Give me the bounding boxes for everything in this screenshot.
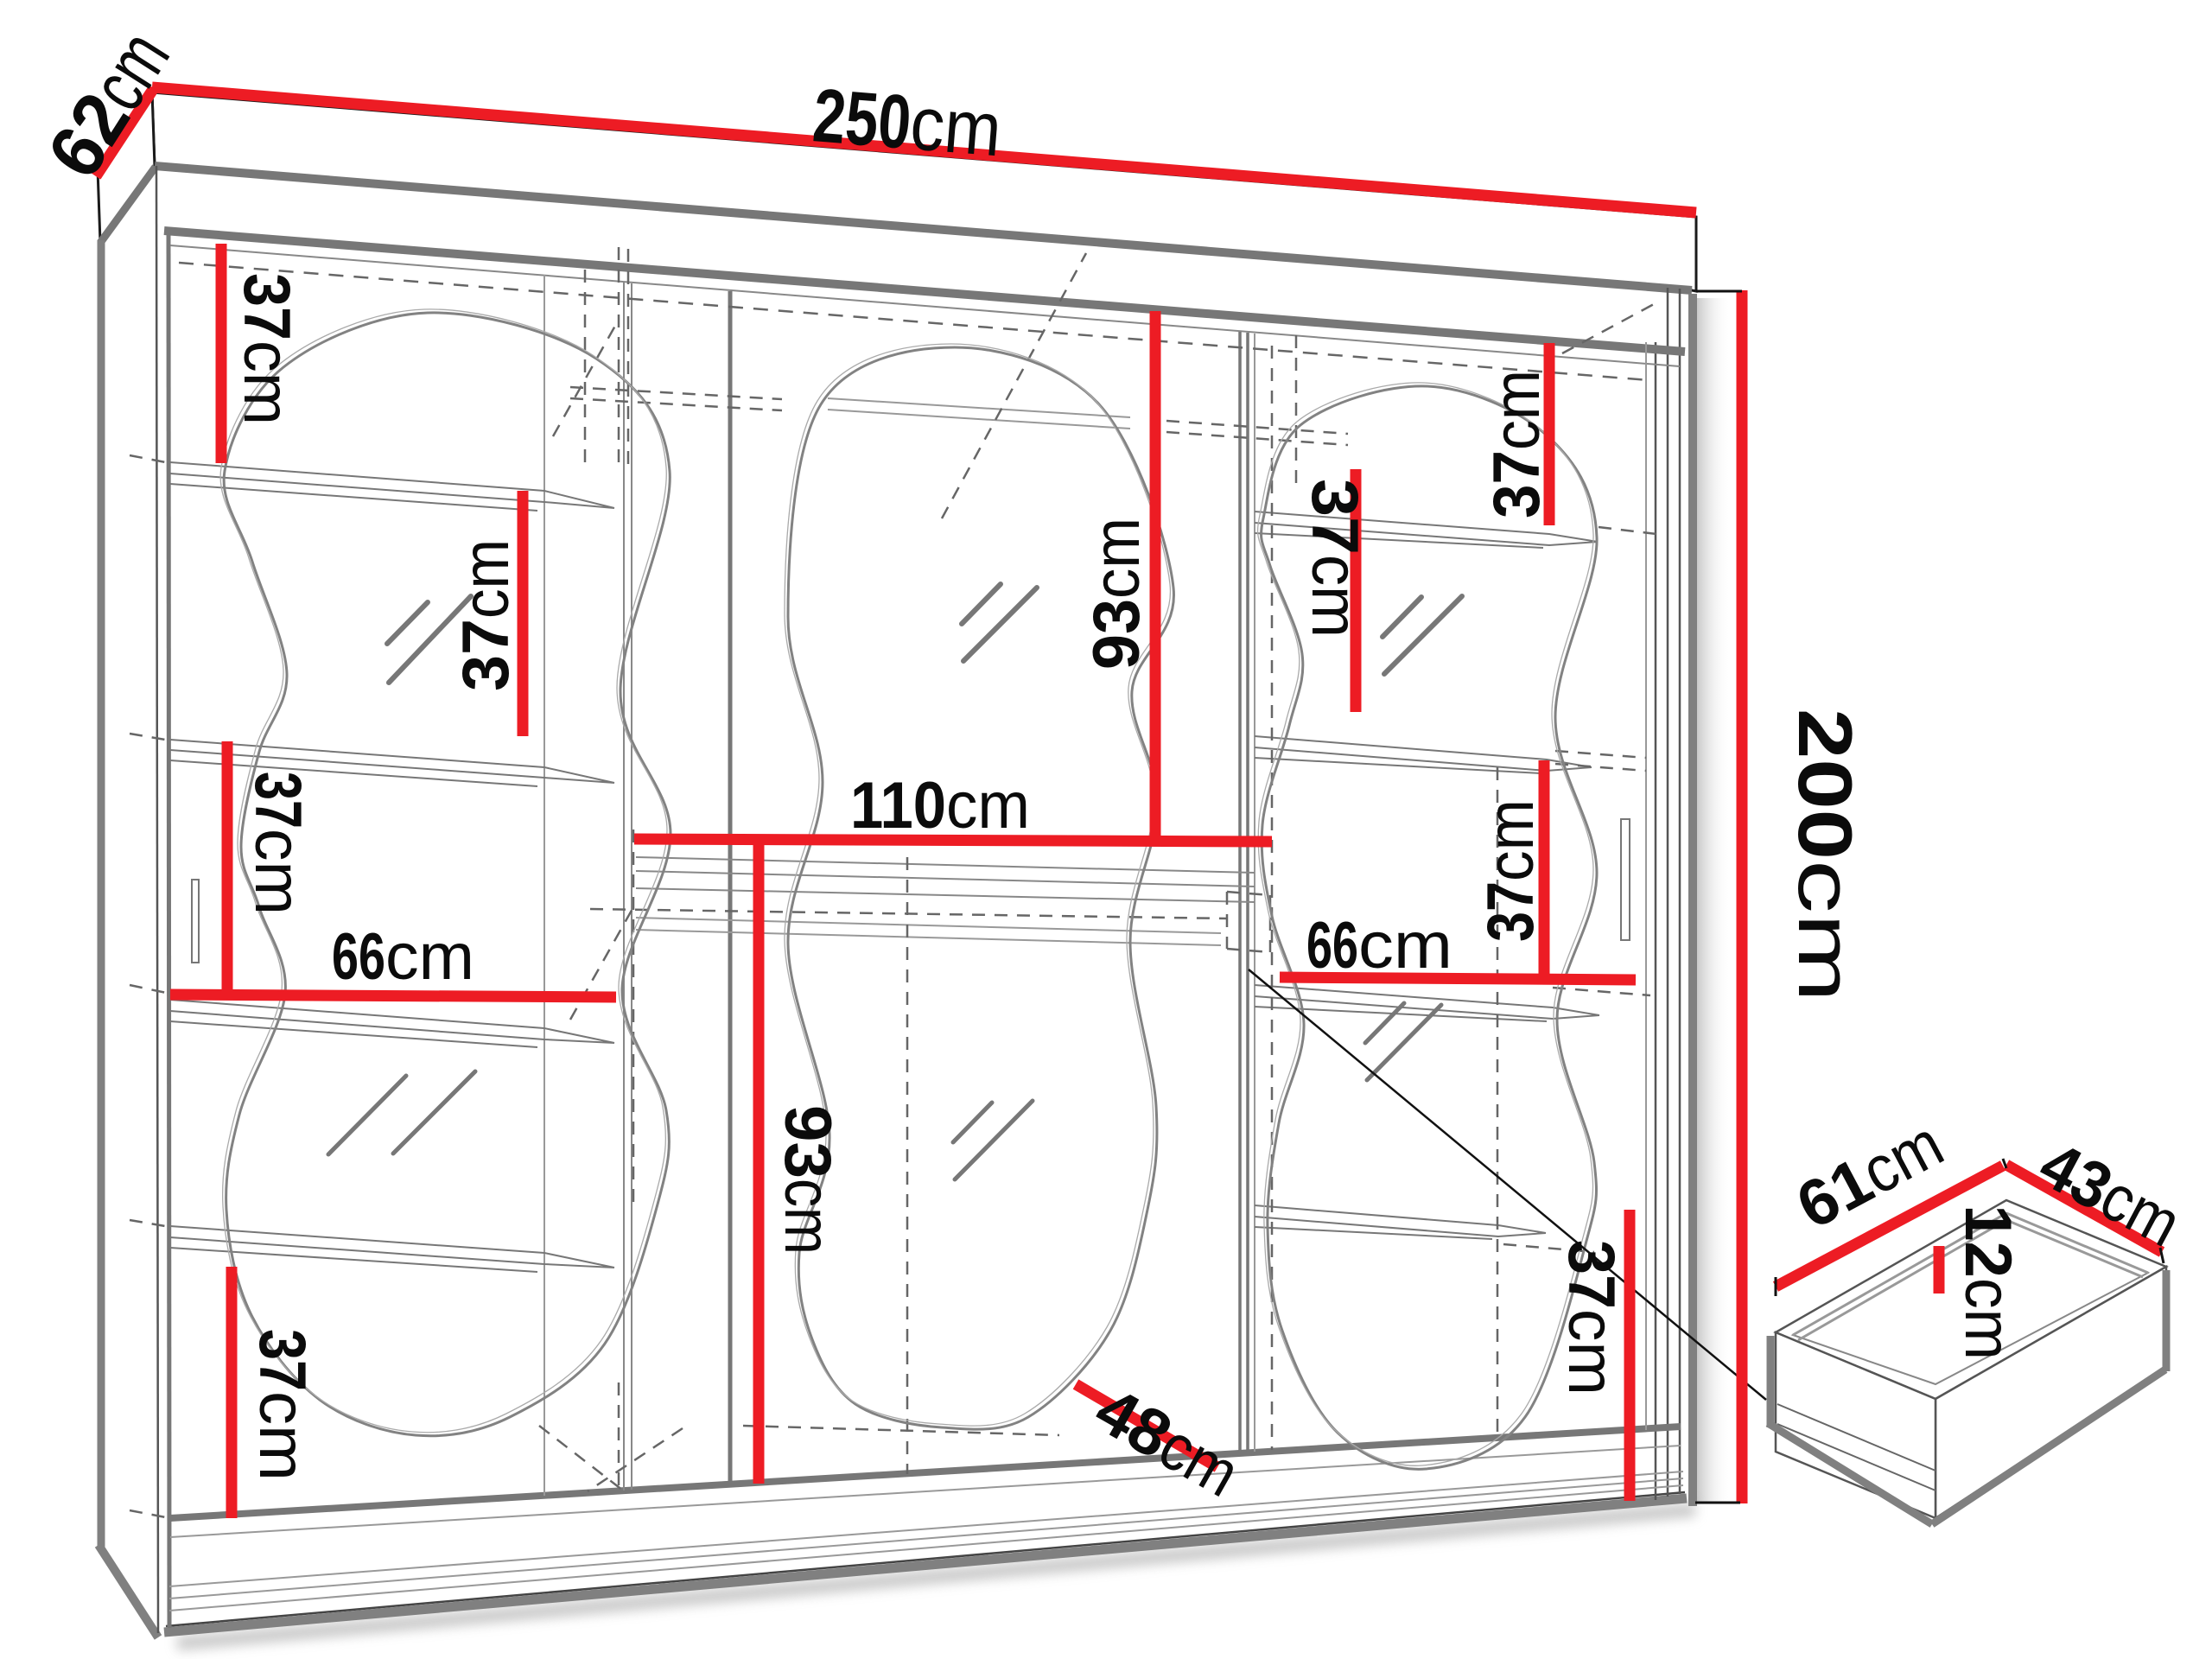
svg-text:66cm: 66cm [332, 920, 474, 994]
svg-text:93cm: 93cm [1080, 518, 1154, 670]
svg-text:37cm: 37cm [1298, 479, 1371, 638]
svg-text:37cm: 37cm [449, 539, 523, 691]
svg-text:37cm: 37cm [241, 772, 315, 915]
svg-text:110cm: 110cm [850, 769, 1030, 842]
svg-text:66cm: 66cm [1306, 909, 1452, 982]
svg-text:93cm: 93cm [771, 1105, 844, 1255]
svg-text:37cm: 37cm [230, 273, 303, 425]
svg-text:37cm: 37cm [1474, 799, 1548, 942]
svg-text:12cm: 12cm [1951, 1205, 2024, 1360]
svg-text:200cm: 200cm [1783, 709, 1868, 1002]
svg-text:37cm: 37cm [1554, 1240, 1628, 1395]
svg-text:37cm: 37cm [245, 1329, 319, 1481]
svg-text:250cm: 250cm [810, 72, 1004, 172]
svg-text:37cm: 37cm [1480, 370, 1554, 518]
